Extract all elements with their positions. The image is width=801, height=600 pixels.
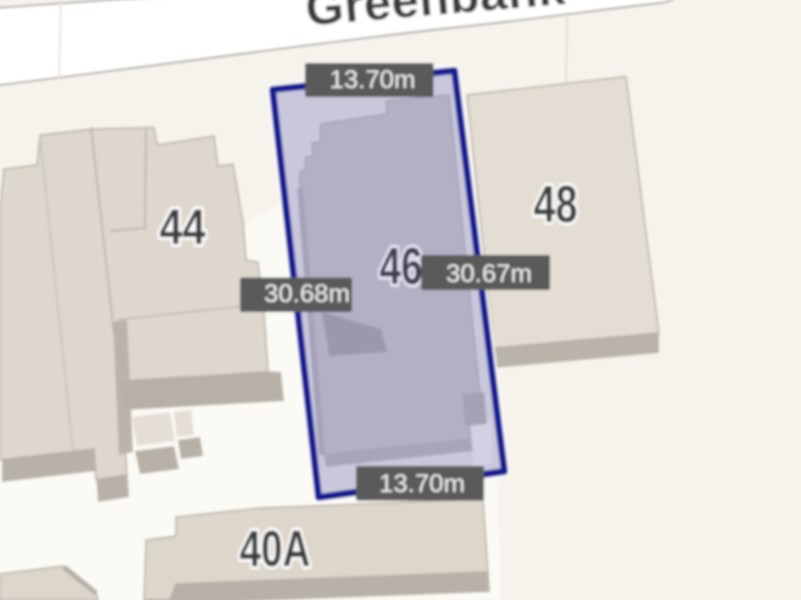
svg-text:40A: 40A (240, 520, 311, 577)
svg-text:44: 44 (160, 199, 206, 255)
svg-text:46: 46 (380, 238, 423, 296)
svg-text:13.70m: 13.70m (379, 470, 465, 498)
svg-text:30.67m: 30.67m (446, 260, 532, 288)
svg-text:48: 48 (534, 176, 578, 234)
svg-text:30.68m: 30.68m (264, 280, 350, 308)
svg-text:13.70m: 13.70m (330, 66, 416, 94)
